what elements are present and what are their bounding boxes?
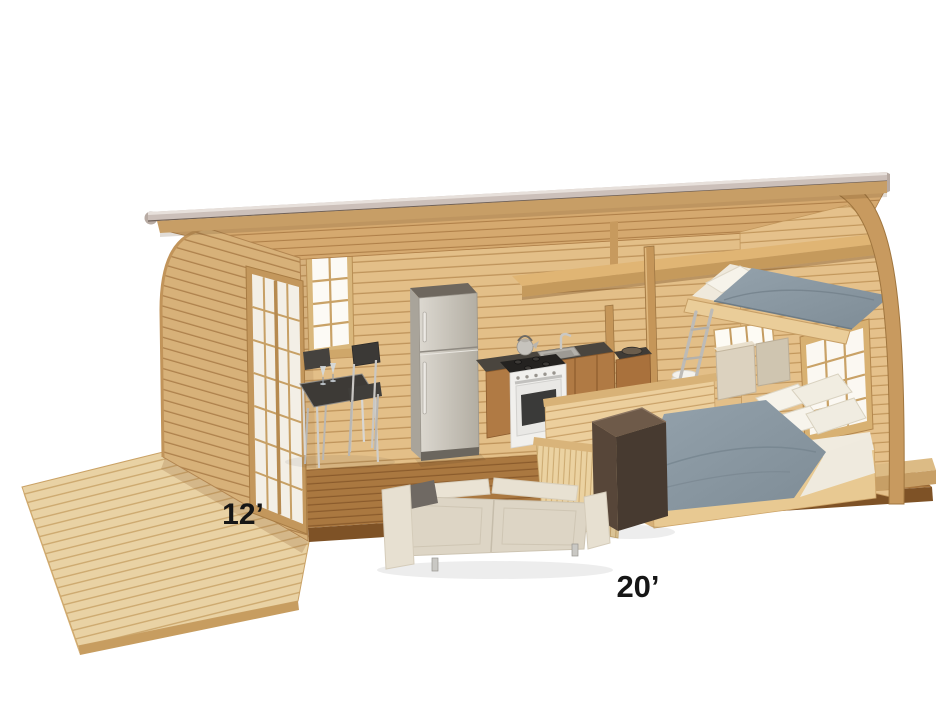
sofa-arm (382, 485, 414, 569)
cutaway-render: 12’ 20’ (0, 0, 940, 705)
cabin-length-label: 20’ (616, 569, 659, 604)
glazed-entry-doors (246, 266, 307, 534)
sofa-leg (572, 544, 578, 556)
render-canvas: 12’ 20’ (0, 0, 940, 705)
fridge-handle (423, 312, 426, 342)
deck-width-label: 12’ (222, 498, 264, 531)
sofa-leg (432, 558, 438, 571)
fridge-handle (423, 362, 426, 414)
refrigerator (410, 283, 486, 467)
sofa-arm (584, 492, 610, 549)
